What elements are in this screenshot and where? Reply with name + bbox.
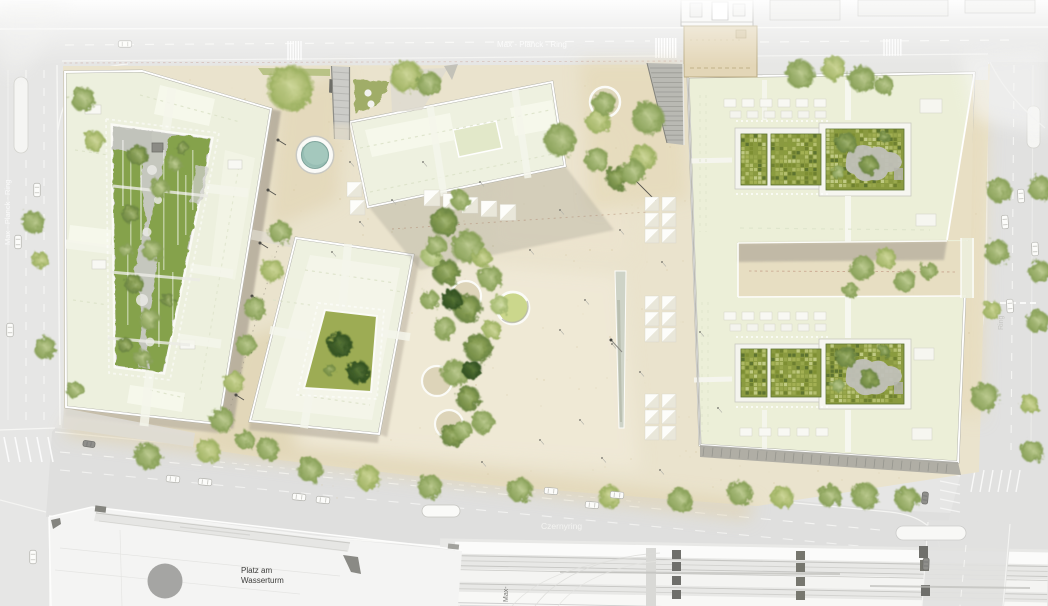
svg-text:Max - Planck - Ring: Max - Planck - Ring bbox=[3, 180, 12, 245]
svg-text:Ring: Ring bbox=[998, 315, 1005, 330]
svg-text:Platz am: Platz am bbox=[241, 566, 272, 575]
svg-text:Czernyring: Czernyring bbox=[541, 521, 582, 531]
svg-text:Max-: Max- bbox=[503, 586, 510, 602]
svg-text:Max - Planck - Ring: Max - Planck - Ring bbox=[497, 40, 567, 49]
svg-text:Wasserturm: Wasserturm bbox=[241, 576, 284, 585]
